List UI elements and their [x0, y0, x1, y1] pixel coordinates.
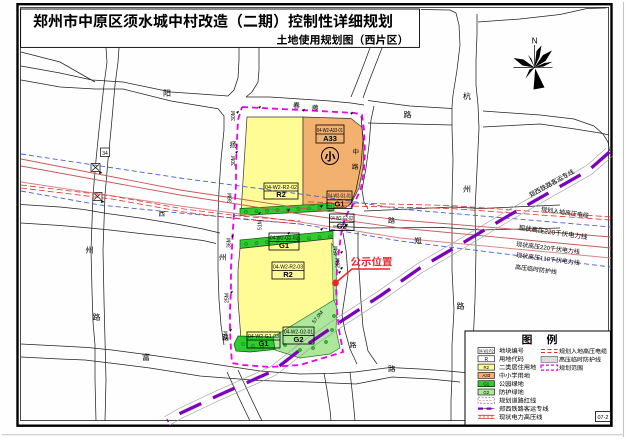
svg-text:36M: 36M: [228, 193, 234, 203]
svg-text:A33: A33: [482, 373, 490, 378]
svg-text:R: R: [484, 357, 488, 363]
svg-text:25M: 25M: [336, 258, 342, 268]
svg-text:G1: G1: [483, 382, 489, 387]
svg-text:25M: 25M: [225, 293, 231, 303]
svg-text:30M: 30M: [231, 111, 237, 121]
svg-text:R2: R2: [276, 190, 286, 199]
svg-text:07-2: 07-2: [597, 415, 608, 421]
svg-text:A33: A33: [323, 134, 337, 143]
svg-text:04-W2-R2: 04-W2-R2: [479, 348, 494, 353]
svg-text:36M: 36M: [227, 238, 233, 248]
svg-text:G2: G2: [337, 221, 347, 230]
svg-text:G2: G2: [483, 390, 489, 395]
svg-text:G1: G1: [258, 339, 268, 348]
svg-text:45M: 45M: [334, 246, 340, 256]
svg-text:34: 34: [102, 151, 108, 157]
svg-text:R2: R2: [483, 365, 489, 370]
svg-text:G1: G1: [334, 199, 344, 208]
svg-text:N: N: [532, 37, 538, 46]
svg-text:R2: R2: [283, 270, 293, 279]
svg-text:30M: 30M: [231, 156, 237, 166]
svg-text:G2: G2: [293, 335, 303, 344]
svg-text:G1: G1: [279, 241, 289, 250]
svg-text:51M: 51M: [258, 220, 264, 230]
